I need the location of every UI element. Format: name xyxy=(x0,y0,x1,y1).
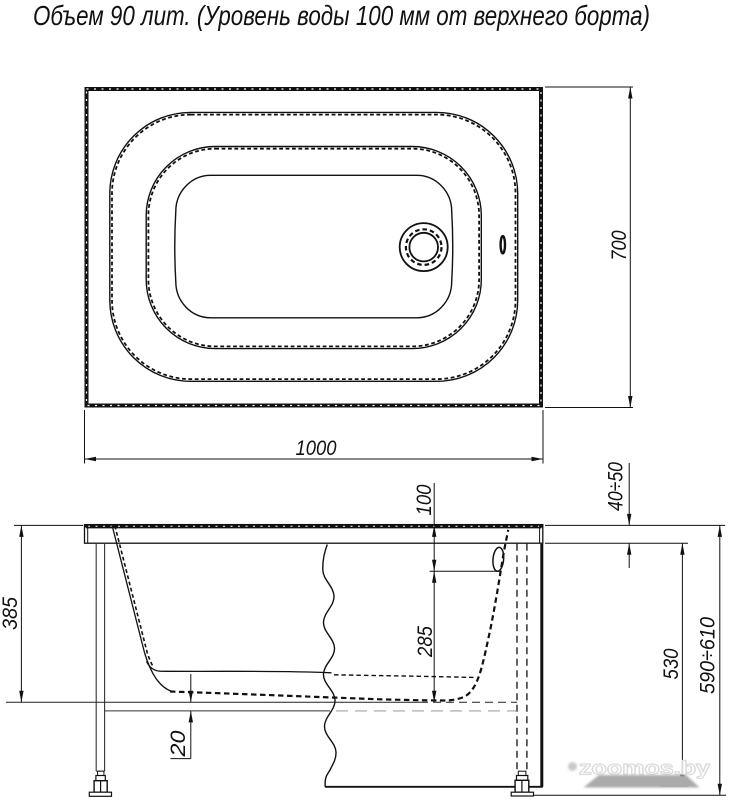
svg-text:100: 100 xyxy=(412,484,436,515)
svg-text:1000: 1000 xyxy=(296,436,337,460)
svg-text:40÷50: 40÷50 xyxy=(604,462,628,511)
svg-text:590÷610: 590÷610 xyxy=(696,617,720,694)
svg-text:385: 385 xyxy=(0,596,22,630)
svg-text:285: 285 xyxy=(413,625,437,658)
svg-text:20: 20 xyxy=(166,730,190,757)
svg-text:Объем 90 лит. (Уровень воды 10: Объем 90 лит. (Уровень воды 100 мм от ве… xyxy=(33,0,650,31)
svg-text:530: 530 xyxy=(659,648,683,679)
svg-text:700: 700 xyxy=(607,230,631,260)
